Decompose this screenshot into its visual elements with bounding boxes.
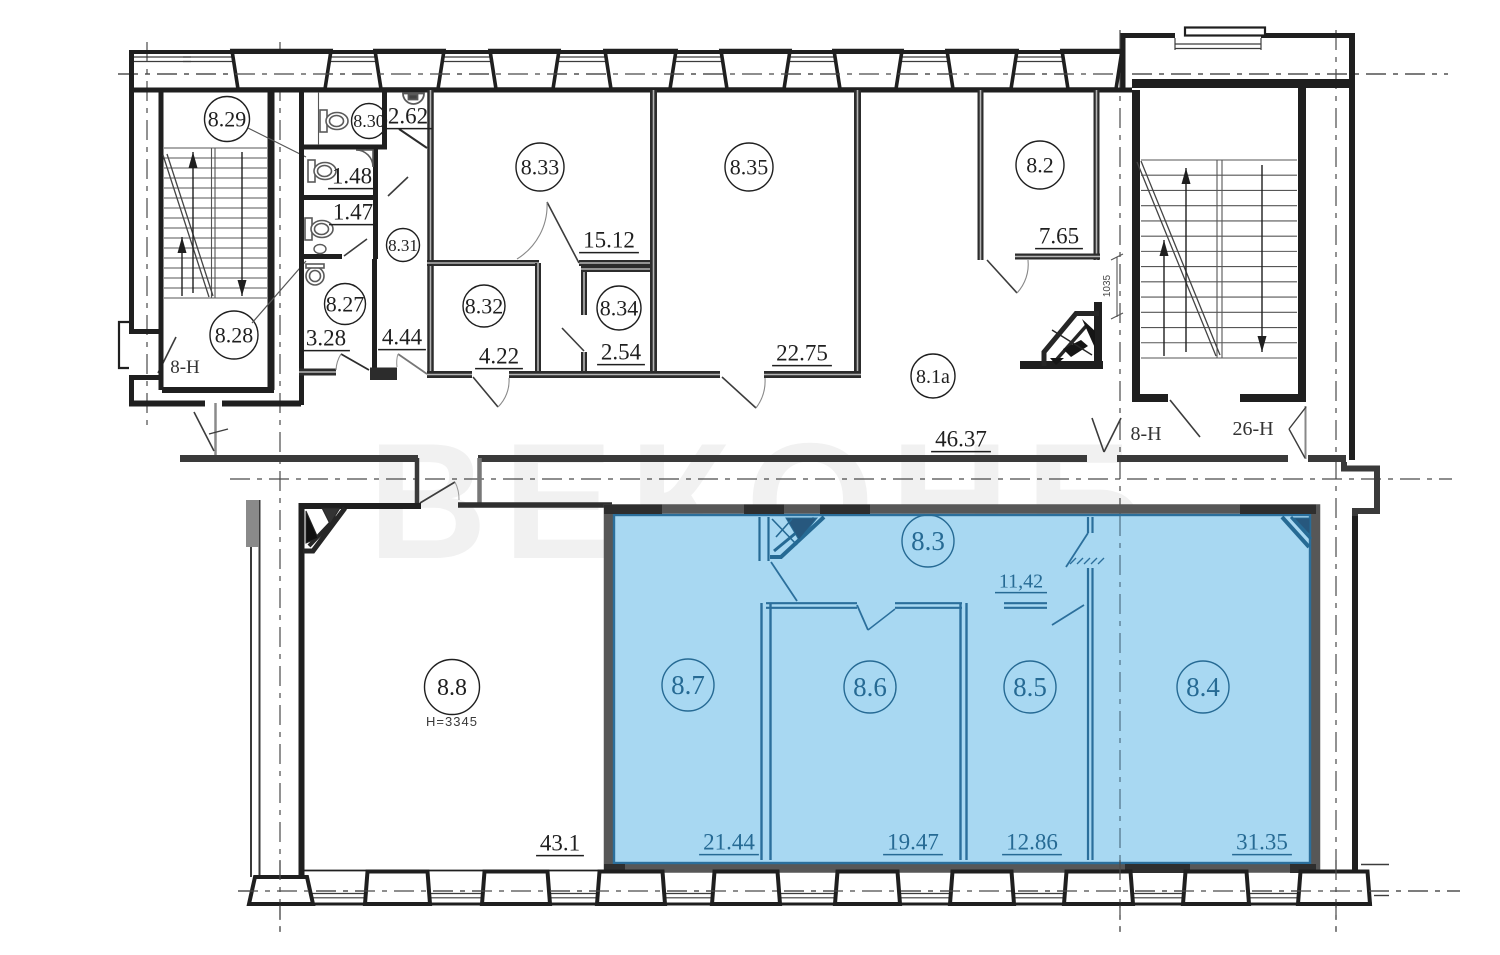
svg-text:8.4: 8.4: [1186, 672, 1220, 702]
svg-text:8.8: 8.8: [437, 675, 467, 701]
svg-text:8.34: 8.34: [600, 295, 639, 320]
svg-text:8.29: 8.29: [208, 106, 247, 131]
svg-text:11,42: 11,42: [999, 571, 1043, 593]
svg-text:19.47: 19.47: [887, 830, 939, 855]
svg-text:2.62: 2.62: [388, 104, 428, 129]
svg-text:31.35: 31.35: [1236, 830, 1288, 855]
svg-text:H=3345: H=3345: [426, 714, 478, 729]
svg-text:8.30: 8.30: [353, 111, 385, 131]
svg-text:4.44: 4.44: [382, 325, 423, 350]
svg-text:8.7: 8.7: [671, 670, 705, 700]
svg-text:15.12: 15.12: [583, 228, 635, 253]
svg-text:4.22: 4.22: [479, 344, 519, 369]
svg-text:1.48: 1.48: [332, 164, 372, 189]
svg-text:8.6: 8.6: [853, 672, 887, 702]
svg-text:8.32: 8.32: [465, 293, 504, 318]
svg-text:8.2: 8.2: [1026, 152, 1054, 177]
svg-text:22.75: 22.75: [776, 341, 828, 366]
svg-text:8.31: 8.31: [388, 236, 418, 255]
svg-text:7.65: 7.65: [1039, 224, 1079, 249]
svg-text:43.1: 43.1: [540, 831, 580, 856]
svg-text:1035: 1035: [1102, 274, 1113, 297]
svg-text:26-H: 26-H: [1232, 418, 1273, 440]
svg-text:8.28: 8.28: [215, 322, 254, 347]
svg-text:8.35: 8.35: [730, 154, 769, 179]
svg-text:1.47: 1.47: [333, 200, 373, 225]
svg-text:8.1a: 8.1a: [916, 366, 950, 388]
svg-text:2.54: 2.54: [601, 340, 642, 365]
svg-text:46.37: 46.37: [935, 427, 987, 452]
svg-text:8.5: 8.5: [1013, 672, 1047, 702]
svg-text:12.86: 12.86: [1006, 830, 1058, 855]
svg-text:8.3: 8.3: [911, 526, 945, 556]
svg-text:3.28: 3.28: [306, 326, 346, 351]
svg-text:8-H: 8-H: [1130, 423, 1161, 445]
svg-text:21.44: 21.44: [703, 830, 755, 855]
svg-text:8.27: 8.27: [326, 291, 365, 316]
svg-text:8.33: 8.33: [521, 154, 560, 179]
svg-text:8-H: 8-H: [170, 357, 200, 378]
